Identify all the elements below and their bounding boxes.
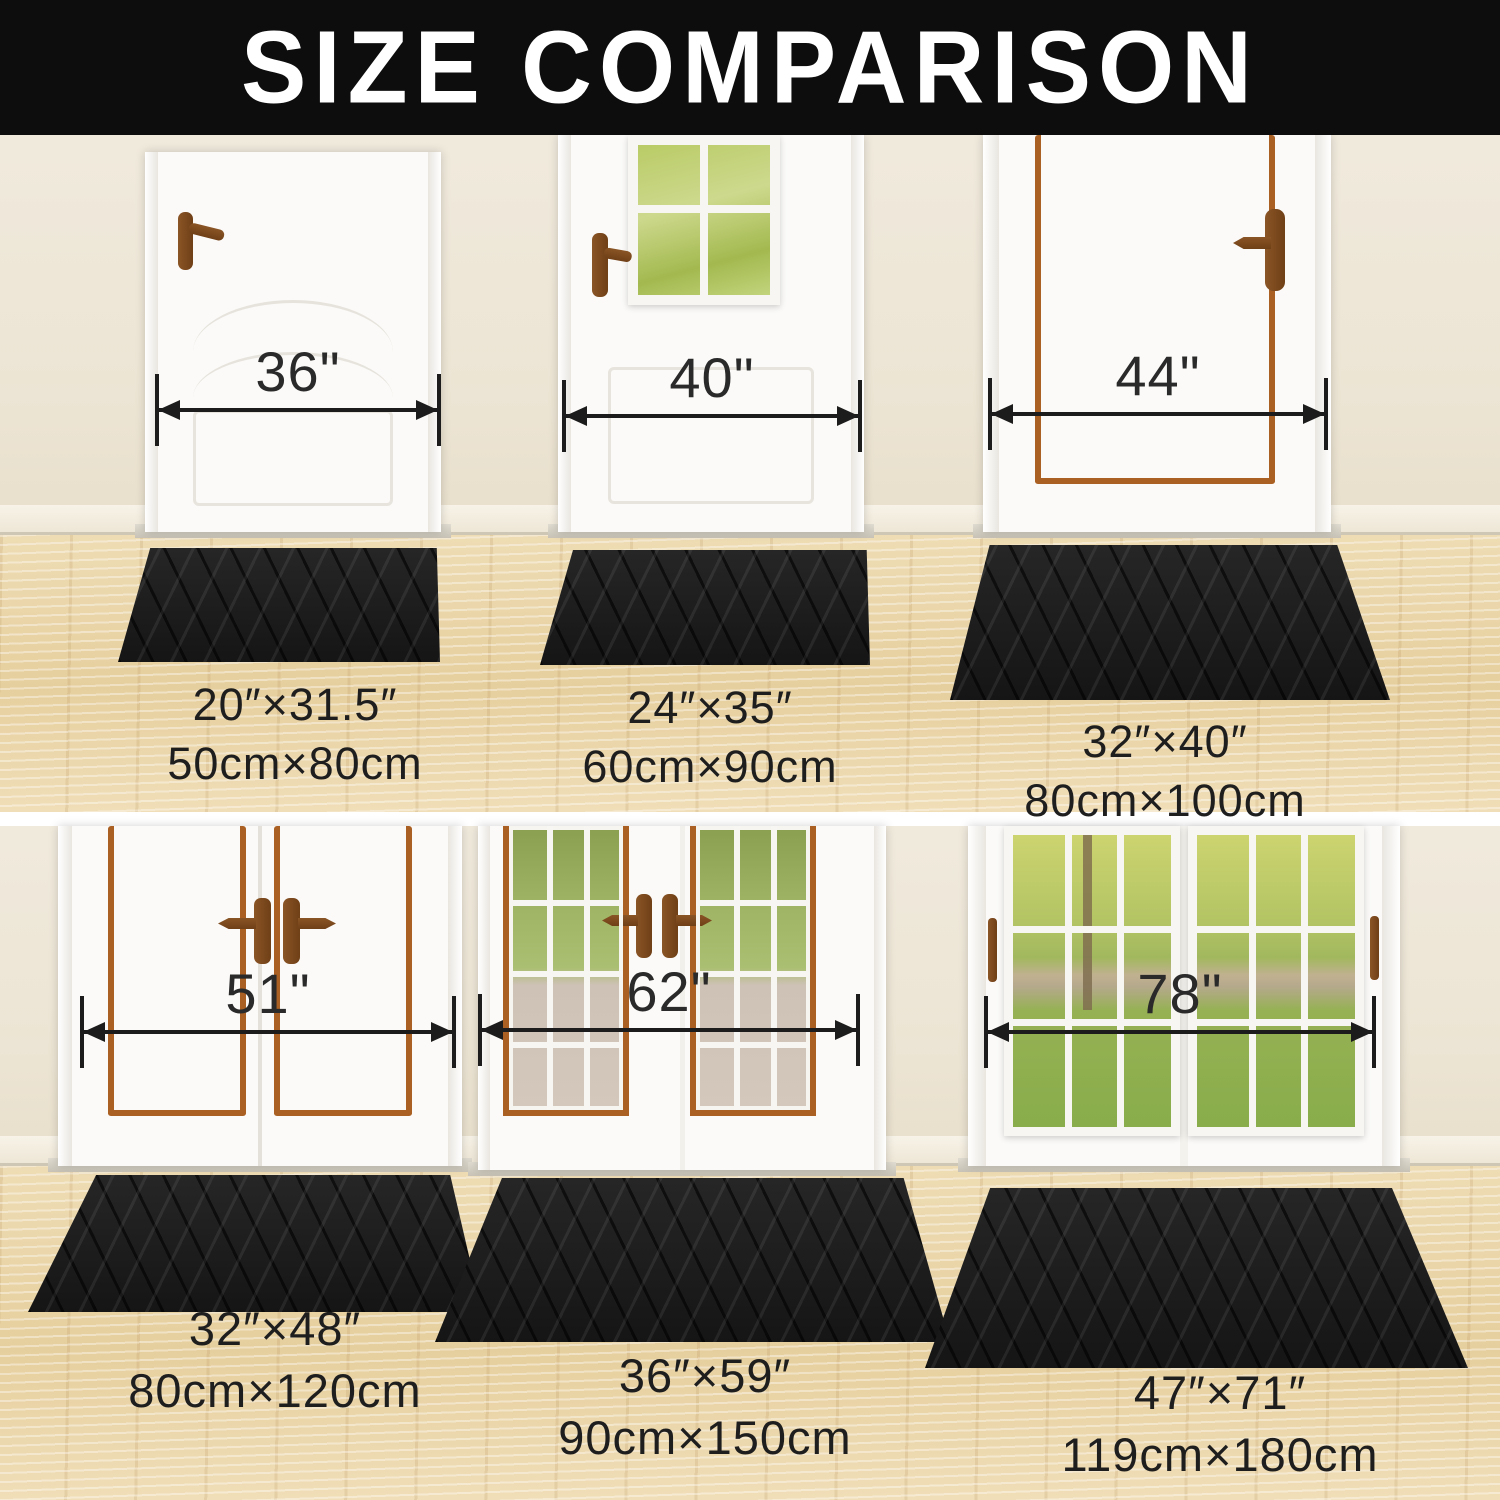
mat-size-inches: 36″×59″ xyxy=(490,1345,920,1407)
door-width-dimension: 36" xyxy=(155,374,441,446)
mat-size-cm: 80cm×100cm xyxy=(955,771,1375,830)
header-banner: SIZE COMPARISON xyxy=(0,0,1500,135)
door-jamb xyxy=(1315,135,1331,532)
mat-size-inches: 24″×35″ xyxy=(520,678,900,737)
arrowhead-right-icon xyxy=(431,1022,453,1042)
door-width-dimension: 44" xyxy=(988,378,1328,450)
door-jamb xyxy=(558,135,571,532)
door-width-value: 36" xyxy=(155,339,441,404)
arrowhead-left-icon xyxy=(565,406,587,426)
door-width-value: 44" xyxy=(988,343,1328,408)
mat-size-inches: 32″×48″ xyxy=(70,1298,480,1360)
arrowhead-left-icon xyxy=(991,404,1013,424)
door-handle xyxy=(283,898,300,964)
door-width-dimension: 51" xyxy=(80,996,456,1068)
page-title: SIZE COMPARISON xyxy=(241,8,1259,127)
window-mullion xyxy=(1013,926,1171,933)
door-jamb xyxy=(851,135,864,532)
door-44-inch xyxy=(983,135,1331,532)
mat-size-label: 36″×59″ 90cm×150cm xyxy=(490,1345,920,1469)
window-mullion xyxy=(700,145,708,295)
dimension-line xyxy=(157,408,439,412)
arrowhead-left-icon xyxy=(481,1020,503,1040)
door-40-inch xyxy=(558,135,864,532)
door-handle xyxy=(662,894,678,958)
doormat-32x40in xyxy=(950,545,1390,700)
window-mullion xyxy=(1197,926,1355,933)
arrowhead-right-icon xyxy=(835,1020,857,1040)
door-handle-lever xyxy=(188,222,226,241)
door-width-value: 51" xyxy=(80,961,456,1026)
doormat-47x71in xyxy=(925,1188,1468,1368)
mat-size-cm: 119cm×180cm xyxy=(985,1424,1455,1486)
door-handle xyxy=(592,233,608,297)
arrowhead-left-icon xyxy=(987,1022,1009,1042)
arrowhead-left-icon xyxy=(83,1022,105,1042)
mat-size-inches: 32″×40″ xyxy=(955,712,1375,771)
door-jamb xyxy=(874,826,886,1170)
dimension-line xyxy=(564,414,860,418)
arrowhead-right-icon xyxy=(416,400,438,420)
door-handle xyxy=(254,898,271,964)
doormat-36x59in xyxy=(435,1178,950,1342)
doormat-20x31in xyxy=(118,548,440,662)
arrowhead-right-icon xyxy=(1303,404,1325,424)
doormat-32x48in xyxy=(28,1175,482,1312)
size-comparison-infographic: SIZE COMPARISON xyxy=(0,0,1500,1500)
mat-size-cm: 50cm×80cm xyxy=(105,734,485,793)
door-handle xyxy=(1265,209,1285,291)
door-handle xyxy=(636,894,652,958)
door-window xyxy=(628,135,780,305)
mat-size-cm: 90cm×150cm xyxy=(490,1407,920,1469)
arrowhead-right-icon xyxy=(837,406,859,426)
mat-size-inches: 47″×71″ xyxy=(985,1362,1455,1424)
door-width-dimension: 62" xyxy=(478,994,860,1066)
mat-size-cm: 60cm×90cm xyxy=(520,737,900,796)
door-jamb xyxy=(983,135,999,532)
door-width-value: 78" xyxy=(984,961,1376,1026)
doormat-24x35in xyxy=(540,550,870,665)
dimension-line xyxy=(82,1030,454,1034)
mat-size-label: 20″×31.5″ 50cm×80cm xyxy=(105,675,485,794)
door-width-dimension: 40" xyxy=(562,380,862,452)
arrowhead-right-icon xyxy=(1351,1022,1373,1042)
mat-size-label: 32″×40″ 80cm×100cm xyxy=(955,712,1375,831)
mat-size-label: 32″×48″ 80cm×120cm xyxy=(70,1298,480,1422)
window-mullion xyxy=(638,205,770,213)
mat-size-inches: 20″×31.5″ xyxy=(105,675,485,734)
window-mullion xyxy=(696,900,810,906)
mat-size-cm: 80cm×120cm xyxy=(70,1360,480,1422)
door-width-value: 40" xyxy=(562,345,862,410)
door-jamb xyxy=(1382,826,1400,1166)
mat-size-label: 24″×35″ 60cm×90cm xyxy=(520,678,900,797)
door-width-dimension: 78" xyxy=(984,996,1376,1068)
dimension-line xyxy=(986,1030,1374,1034)
dimension-line xyxy=(990,412,1326,416)
dimension-line xyxy=(480,1028,858,1032)
mat-size-label: 47″×71″ 119cm×180cm xyxy=(985,1362,1455,1486)
window-mullion xyxy=(509,900,623,906)
door-width-value: 62" xyxy=(478,959,860,1024)
door-jamb xyxy=(58,826,72,1166)
arrowhead-left-icon xyxy=(158,400,180,420)
door-handle xyxy=(178,212,193,270)
